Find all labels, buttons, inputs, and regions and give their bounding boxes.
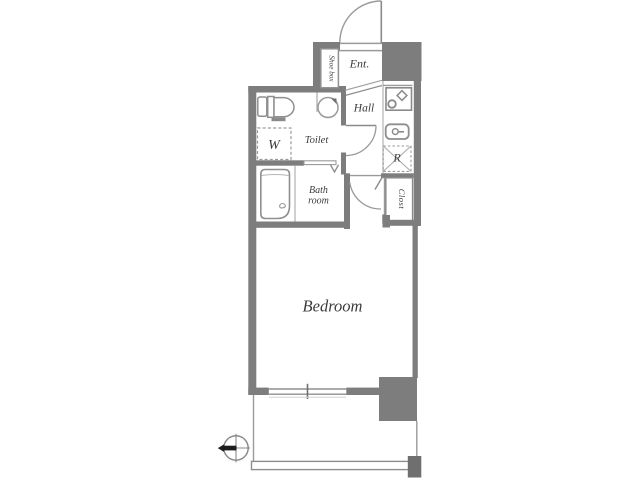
svg-text:Ent.: Ent. [349, 57, 370, 71]
svg-text:room: room [308, 196, 329, 207]
svg-text:Shoe box: Shoe box [328, 55, 336, 82]
svg-text:Bath: Bath [309, 185, 328, 196]
svg-text:Clost: Clost [397, 189, 407, 210]
svg-text:R: R [392, 151, 401, 165]
svg-text:Hall: Hall [353, 103, 374, 115]
svg-text:Bedroom: Bedroom [303, 297, 363, 316]
svg-text:Toilet: Toilet [305, 135, 330, 146]
svg-text:W: W [268, 138, 281, 153]
